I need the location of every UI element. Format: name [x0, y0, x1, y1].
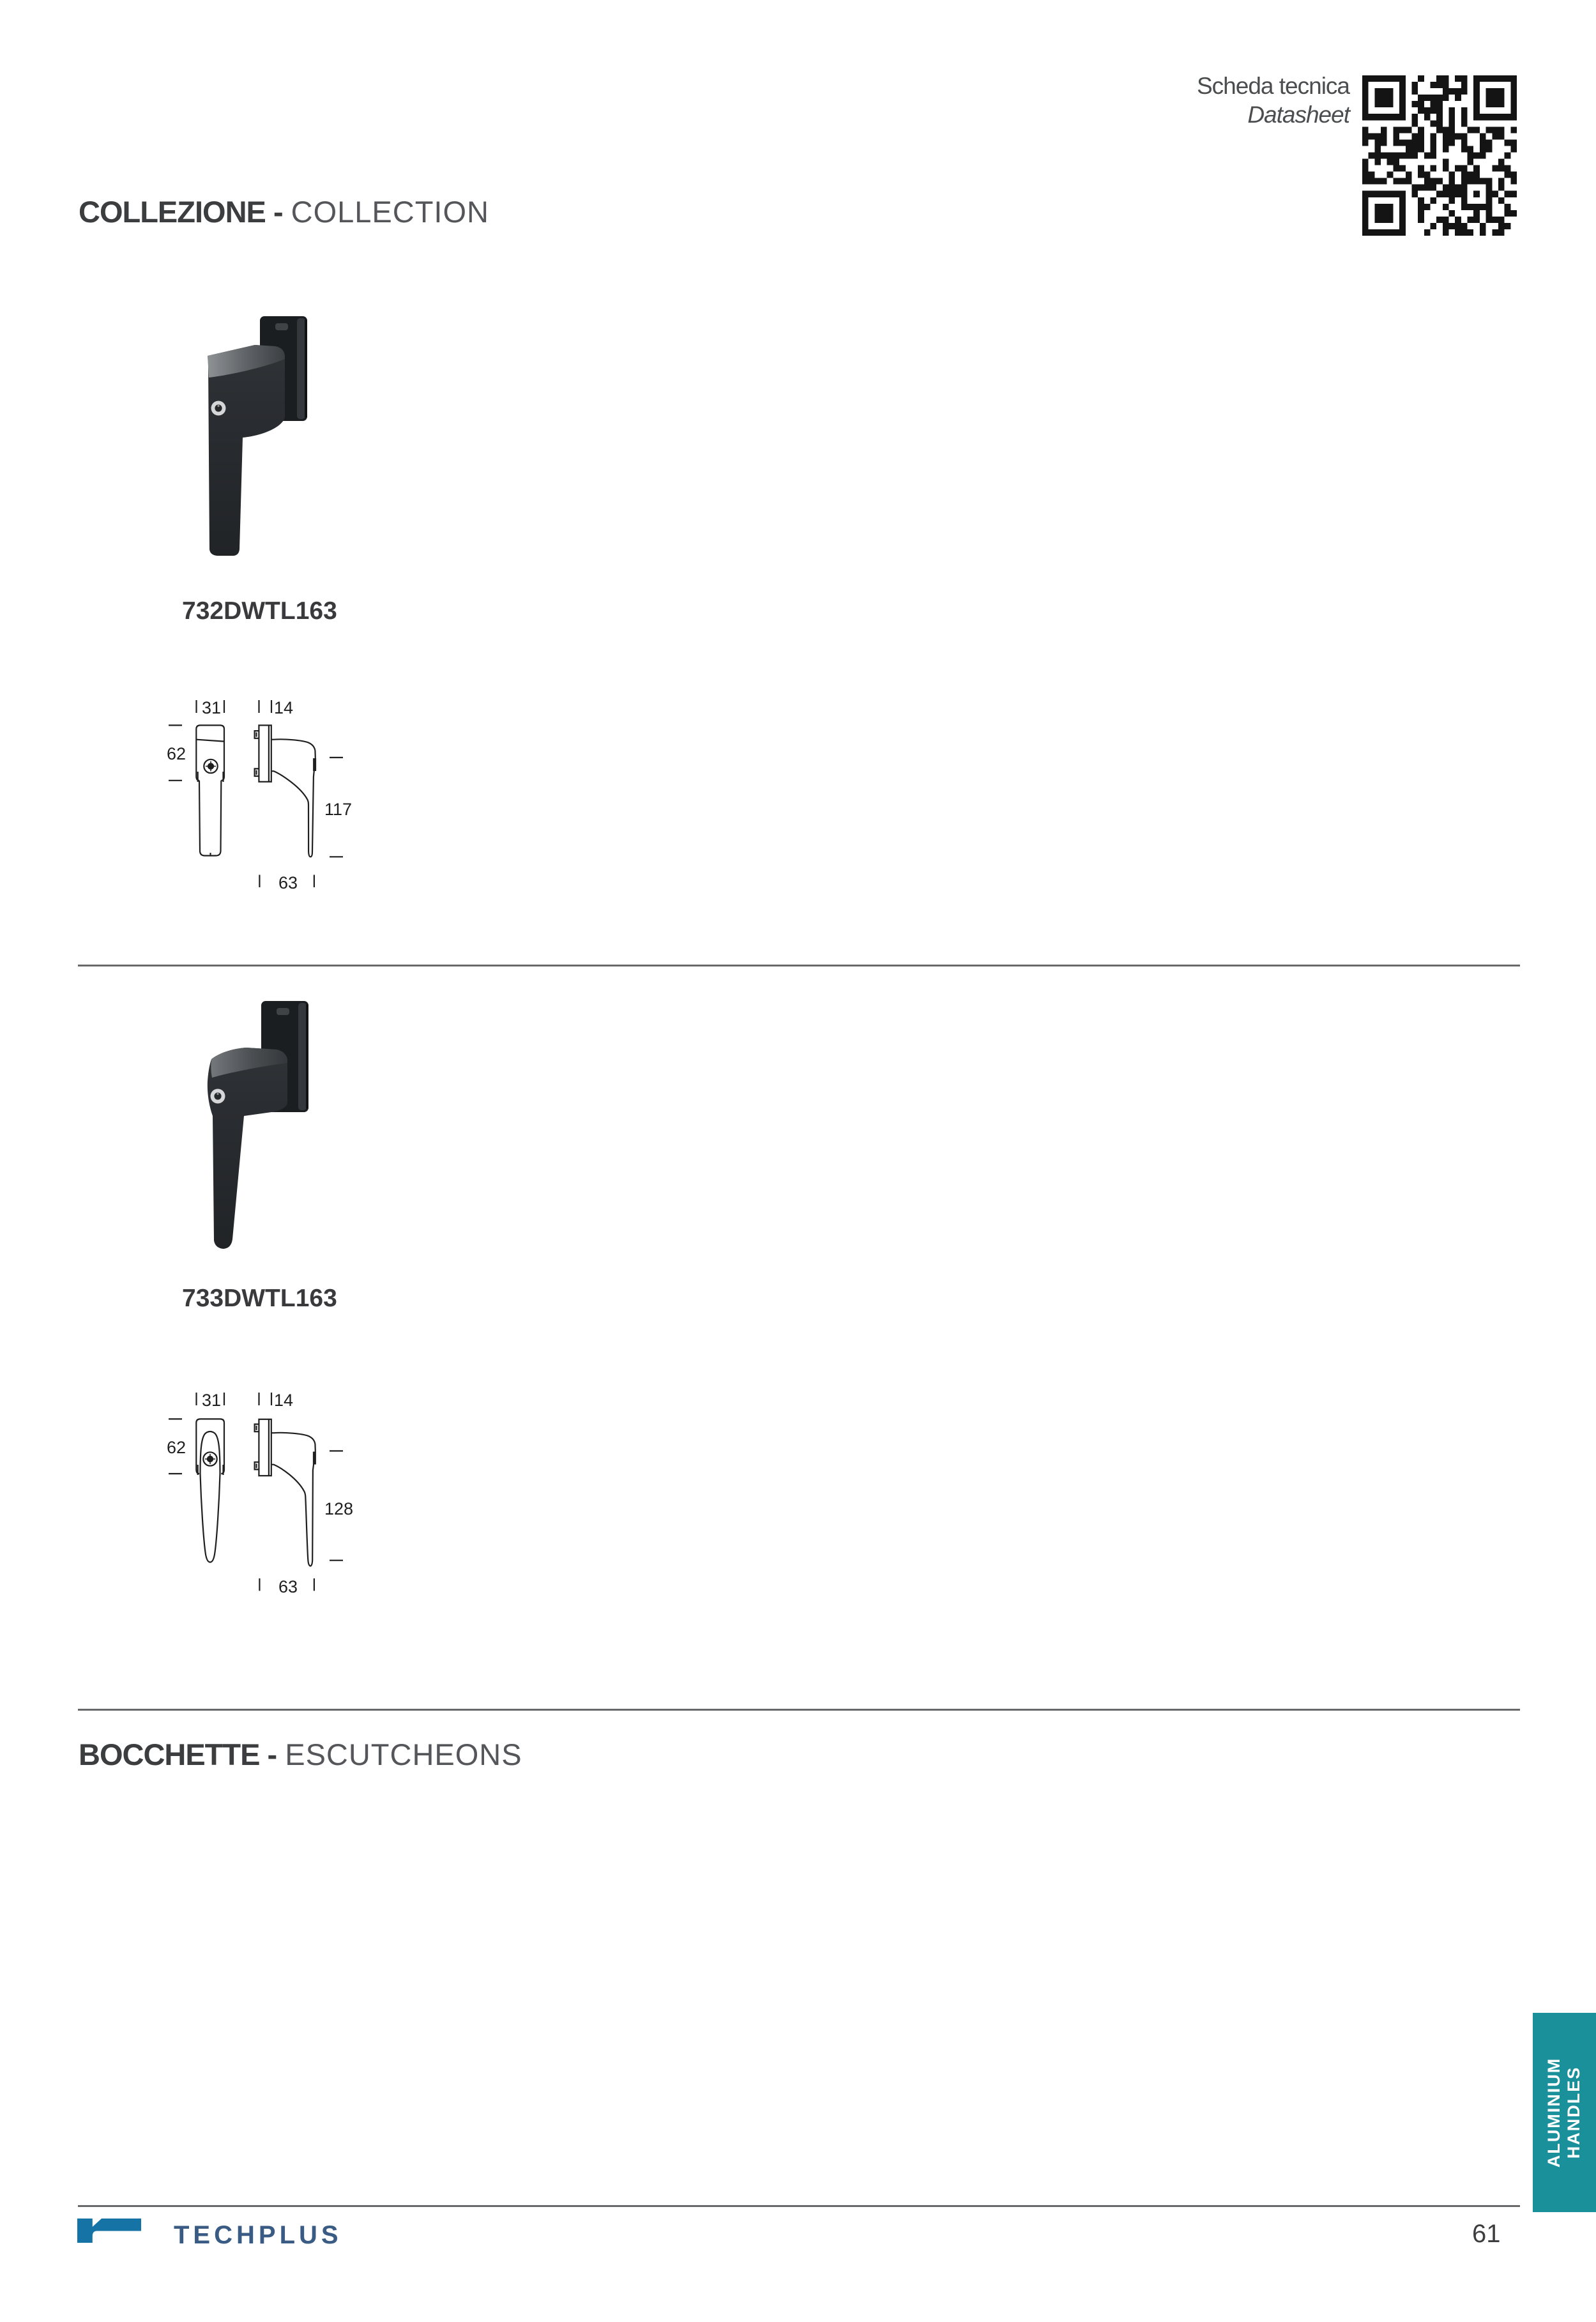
svg-text:128: 128 — [324, 1499, 353, 1518]
svg-text:62: 62 — [167, 744, 186, 763]
svg-text:31: 31 — [202, 698, 221, 717]
svg-text:14: 14 — [274, 698, 293, 717]
svg-text:63: 63 — [278, 1577, 298, 1596]
svg-text:117: 117 — [324, 800, 352, 819]
svg-text:31: 31 — [202, 1391, 221, 1410]
svg-text:14: 14 — [274, 1391, 293, 1410]
svg-text:62: 62 — [167, 1438, 186, 1457]
svg-text:63: 63 — [278, 873, 298, 892]
